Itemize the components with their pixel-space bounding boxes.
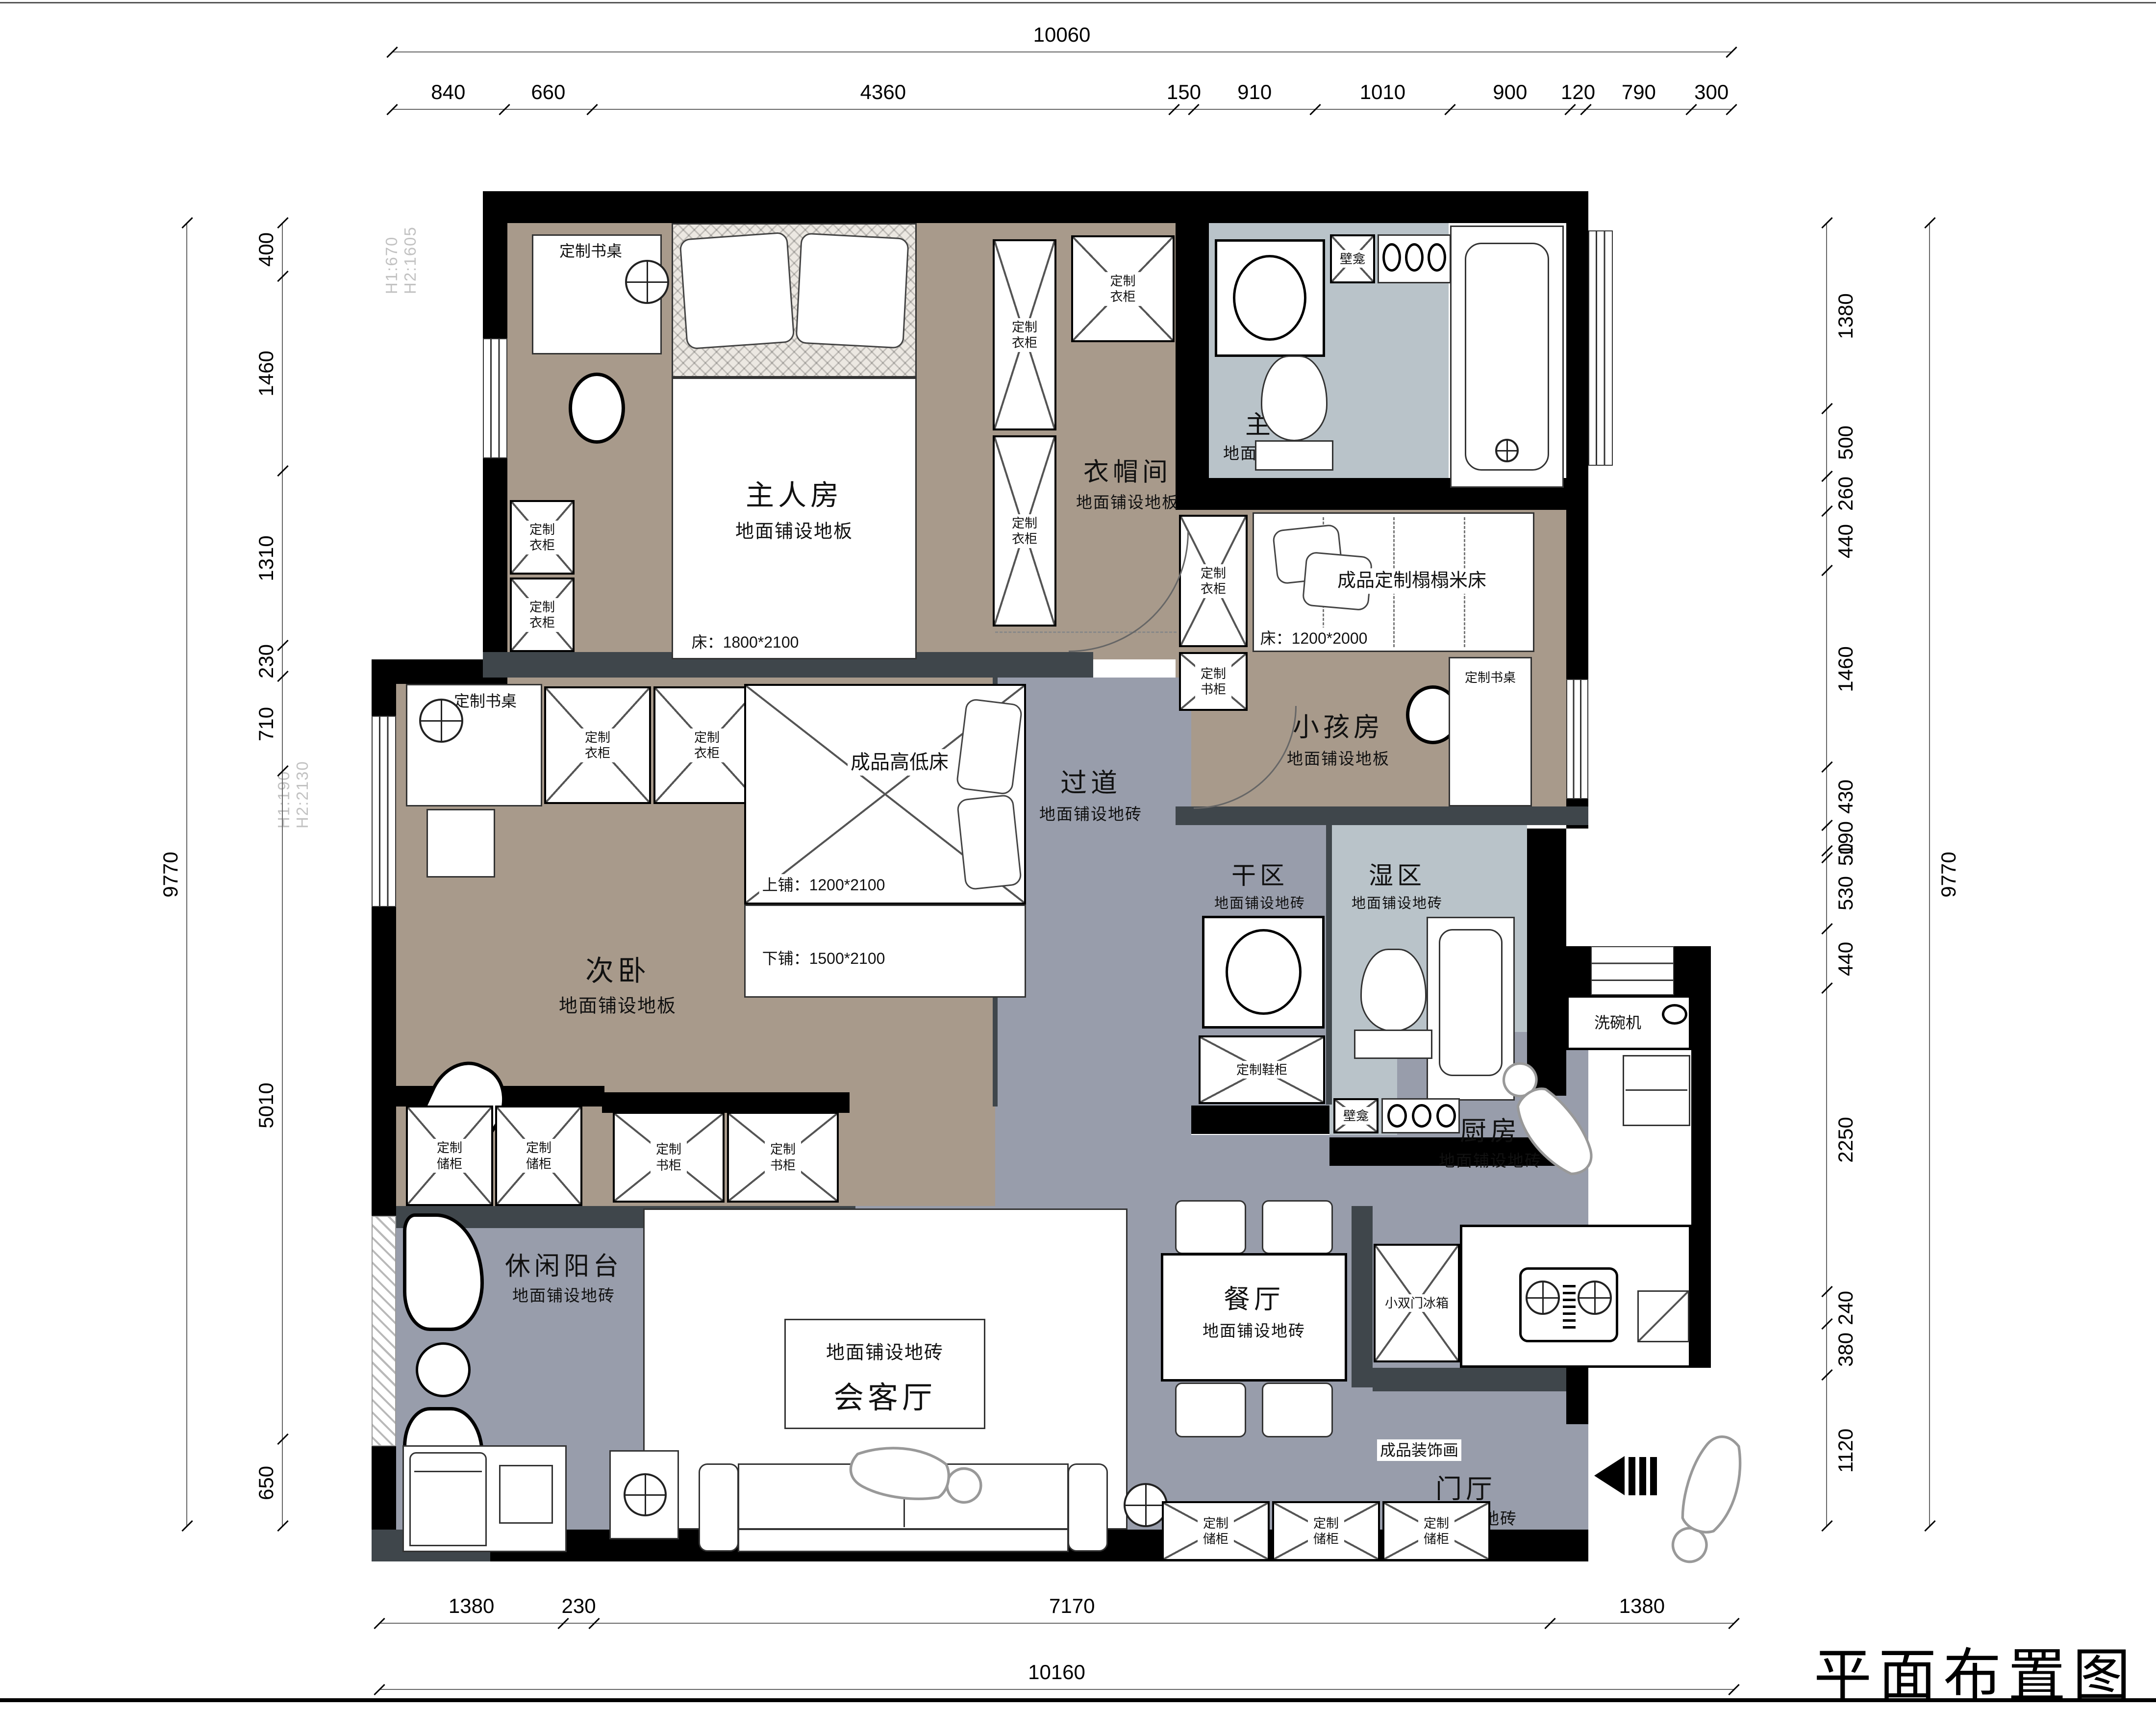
chair-second-desk <box>426 809 495 878</box>
corridor-floor-label: 地面铺设地砖 <box>1039 801 1142 825</box>
wall-kitchen-north-left <box>1566 946 1591 995</box>
desk-master-crosshair-icon <box>625 260 669 304</box>
dimension-tick <box>1686 104 1697 115</box>
bookcase-cabinet: 定制书柜 <box>727 1112 839 1203</box>
wardrobe-label: 定制衣柜 <box>579 729 616 762</box>
kids-room-floor-label: 地面铺设地板 <box>1287 746 1390 769</box>
shoe-cabinet: 定制鞋柜 <box>1199 1035 1325 1104</box>
wardrobe-label: 定制衣柜 <box>1006 318 1043 352</box>
entry-arrow-icon <box>1594 1456 1625 1495</box>
window-height-note: H1:190 H2:2130 <box>275 760 312 829</box>
wardrobe-cabinet: 定制衣柜 <box>510 578 575 652</box>
sofa-arm <box>699 1463 739 1552</box>
wardrobe-label: 定制衣柜 <box>524 598 560 632</box>
wall-right-kids <box>1566 490 1588 679</box>
dimension-tick <box>1821 1286 1832 1297</box>
wall-bath-west <box>1176 223 1209 510</box>
shoe-cabinet-label: 定制鞋柜 <box>1233 1061 1290 1079</box>
dimension-chain-right-overall: 9770 <box>1929 223 1930 1526</box>
tatami-bed-size: 床：1200*2000 <box>1257 628 1371 649</box>
dimension-tick <box>1821 505 1832 517</box>
dimension-tick <box>588 1618 600 1629</box>
wardrobe-label: 定制衣柜 <box>689 729 725 762</box>
dimension-label: 4360 <box>860 80 906 104</box>
dimension-label: 230 <box>254 644 278 679</box>
laundry-sink <box>499 1465 553 1524</box>
dimension-tick <box>277 671 288 682</box>
stove-grill <box>1563 1282 1576 1329</box>
wardrobe-cabinet: 定制衣柜 <box>1071 235 1175 342</box>
cloak-room-floor-label: 地面铺设地板 <box>1076 489 1179 513</box>
fridge-label: 小双门冰箱 <box>1382 1294 1452 1312</box>
window-kitchen-north <box>1591 946 1674 995</box>
dimension-tick <box>499 104 510 115</box>
dimension-label: 1380 <box>449 1594 494 1618</box>
wet-area-floor-label: 地面铺设地砖 <box>1352 892 1443 912</box>
stove-burner-icon <box>1578 1281 1612 1315</box>
niche-jar <box>1428 243 1446 272</box>
dimension-chain-right-segments: 1380500260440146043019050530440225024038… <box>1826 223 1827 1526</box>
dimension-chain-left-overall: 9770 <box>186 223 187 1526</box>
dimension-chain-bottom-overall: 10160 <box>379 1689 1734 1690</box>
pillow <box>956 794 1023 890</box>
second-room-name: 次卧 <box>585 948 650 989</box>
wet-area-name: 湿区 <box>1369 856 1426 891</box>
niche-jar <box>1382 243 1401 272</box>
basin-bowl <box>1226 929 1302 1015</box>
dimension-label: 120 <box>1561 80 1595 104</box>
dimension-tick <box>1821 1520 1832 1532</box>
corridor-name: 过道 <box>1060 761 1121 800</box>
dimension-tick <box>386 47 398 58</box>
bunk-lower-size: 下铺：1500*2100 <box>759 948 888 969</box>
wardrobe-cabinet: 定制衣柜 <box>993 239 1056 430</box>
wall-top <box>483 191 1588 223</box>
dimension-chain-top-segments: 84066043601509101010900120790300 <box>392 109 1731 110</box>
balcony-name: 休闲阳台 <box>505 1246 623 1282</box>
dimension-tick <box>277 217 288 228</box>
dishwasher-label: 洗碗机 <box>1591 1012 1644 1033</box>
window-height-note-line: H2:1605 <box>401 226 420 294</box>
dimension-tick <box>1821 565 1832 576</box>
storage-label: 定制储柜 <box>521 1139 557 1173</box>
niche-jar <box>1387 1104 1407 1128</box>
stove-burner-icon <box>1526 1281 1560 1315</box>
sofa-arm <box>1068 1463 1108 1552</box>
pillow <box>679 232 795 350</box>
dimension-tick <box>1168 104 1179 115</box>
dimension-tick <box>1188 104 1200 115</box>
bookcase-label: 定制书柜 <box>1195 665 1231 699</box>
master-room-name: 主人房 <box>746 472 843 513</box>
niche: 壁龛 <box>1333 1098 1379 1133</box>
dimension-chain-bottom-segments: 138023071701380 <box>379 1623 1734 1624</box>
entry-arrow-bar <box>1650 1457 1657 1495</box>
bookcase-cabinet: 定制书柜 <box>613 1112 725 1203</box>
desk-second-label: 定制书桌 <box>454 689 517 711</box>
dimension-label: 660 <box>531 80 565 104</box>
wardrobe-label: 定制衣柜 <box>524 521 560 554</box>
pillow <box>795 232 909 349</box>
wall-dining-kitchen <box>1352 1206 1373 1387</box>
dry-area-floor-label: 地面铺设地砖 <box>1214 892 1305 912</box>
dimension-tick <box>374 1618 385 1629</box>
dimension-label: 400 <box>254 232 278 267</box>
wall-kitchen-east <box>1691 995 1711 1368</box>
dimension-label: 790 <box>1622 80 1656 104</box>
dining-chair <box>1262 1383 1333 1437</box>
window-height-note-line: H1:670 <box>382 226 401 294</box>
dimension-label: 500 <box>1834 426 1857 460</box>
dimension-label: 840 <box>431 80 465 104</box>
dimension-label: 1010 <box>1360 80 1405 104</box>
master-room-floor-label: 地面铺设地板 <box>735 516 853 543</box>
floor-outlet-icon <box>624 1473 667 1516</box>
dining-floor-label: 地面铺设地砖 <box>1203 1318 1305 1341</box>
storage-label: 定制储柜 <box>1308 1514 1344 1548</box>
dimension-tick <box>1821 403 1832 414</box>
entry-name: 门厅 <box>1435 1467 1496 1506</box>
decor-painting-label: 成品装饰画 <box>1377 1439 1461 1461</box>
wall-cabinet-row-b <box>602 1092 850 1113</box>
dimension-label: 440 <box>1834 524 1857 558</box>
washing-machine <box>409 1452 487 1546</box>
storage-cabinet: 定制储柜 <box>1162 1501 1270 1561</box>
window-bath-bay <box>1588 230 1613 466</box>
wall-dry-south <box>1191 1106 1329 1134</box>
storage-label: 定制储柜 <box>1198 1514 1234 1548</box>
dimension-tick <box>1821 982 1832 994</box>
dimension-label: 530 <box>1834 876 1857 910</box>
desk-kids-label: 定制书桌 <box>1462 669 1519 687</box>
dimension-tick <box>1728 1618 1739 1629</box>
dimension-tick <box>1726 104 1737 115</box>
window-kids-right <box>1566 679 1588 799</box>
niche-label: 壁龛 <box>1340 1107 1372 1125</box>
dimension-tick <box>277 271 288 282</box>
dining-chair <box>1175 1383 1246 1437</box>
kids-room-name: 小孩房 <box>1293 705 1384 744</box>
window-second-left <box>372 716 396 907</box>
niche-jar <box>1436 1104 1456 1128</box>
dimension-label: 10060 <box>1033 23 1091 47</box>
dimension-label: 300 <box>1694 80 1729 104</box>
dimension-label: 1380 <box>1619 1594 1665 1618</box>
dimension-label: 1380 <box>1834 293 1857 339</box>
bunk-bed-label: 成品高低床 <box>848 749 952 776</box>
bathtub-master <box>1465 243 1549 471</box>
dimension-label: 5010 <box>254 1082 278 1128</box>
wall-kitchen-south <box>1373 1368 1588 1391</box>
desk-second-crosshair-icon <box>419 699 463 743</box>
dimension-label: 7170 <box>1049 1594 1095 1618</box>
toilet-wet-bowl <box>1360 949 1427 1032</box>
dimension-label: 240 <box>1834 1291 1857 1325</box>
dimension-label: 430 <box>1834 780 1857 814</box>
floor-plan-title: 平面布置图 <box>1677 1629 2137 1710</box>
dimension-tick <box>277 1520 288 1532</box>
bunk-upper-size: 上铺：1200*2100 <box>759 874 888 896</box>
dimension-tick <box>1821 1318 1832 1330</box>
storage-label: 定制储柜 <box>1418 1514 1454 1548</box>
dimension-label: 150 <box>1167 80 1201 104</box>
storage-cabinet: 定制储柜 <box>1272 1501 1380 1561</box>
dimension-label: 440 <box>1834 942 1857 976</box>
dimension-tick <box>1309 104 1321 115</box>
dimension-tick <box>386 104 398 115</box>
dining-name: 餐厅 <box>1224 1278 1284 1316</box>
wall-kitchen-north-right <box>1674 946 1711 995</box>
kitchen-sink <box>1662 1004 1687 1025</box>
dimension-tick <box>1924 217 1935 228</box>
cloak-room-name: 衣帽间 <box>1083 452 1172 488</box>
person-figure <box>1640 1418 1772 1582</box>
dimension-tick <box>1821 923 1832 934</box>
bookcase-cabinet: 定制书柜 <box>1179 652 1248 711</box>
toilet-master-bowl <box>1261 355 1328 441</box>
niche-jar <box>1412 1104 1431 1128</box>
dimension-tick <box>1821 845 1832 856</box>
dimension-label: 260 <box>1834 477 1857 511</box>
wardrobe-cabinet: 定制衣柜 <box>993 435 1056 627</box>
dimension-tick <box>277 465 288 477</box>
dimension-label: 1460 <box>254 351 278 397</box>
bathtub-faucet-icon <box>1495 439 1519 462</box>
kitchen-door <box>1637 1290 1689 1342</box>
basin-bowl <box>1233 255 1306 341</box>
dimension-label: 1460 <box>1834 646 1857 692</box>
dimension-tick <box>1924 1520 1935 1532</box>
dining-chair <box>1175 1200 1246 1254</box>
dimension-tick <box>374 1684 385 1695</box>
bookcase-label: 定制书柜 <box>651 1140 687 1174</box>
wall-kids-south <box>1176 806 1588 825</box>
toilet-master-tank <box>1255 440 1333 471</box>
dining-table <box>1161 1253 1347 1382</box>
window-master-left <box>483 338 507 458</box>
dimension-label: 1120 <box>1834 1429 1857 1473</box>
dining-chair <box>1262 1200 1333 1254</box>
dimension-tick <box>1444 104 1455 115</box>
living-floor-label: 地面铺设地砖 <box>826 1337 944 1364</box>
dimension-tick <box>558 1618 569 1629</box>
niche: 壁龛 <box>1330 234 1375 283</box>
window-balcony-left <box>372 1216 396 1446</box>
second-room-floor-label: 地面铺设地板 <box>559 991 677 1018</box>
toilet-wet-tank <box>1354 1030 1432 1059</box>
entry-arrow-bar <box>1629 1457 1635 1495</box>
entry-arrow-bar <box>1639 1457 1646 1495</box>
chair-master <box>569 373 625 444</box>
dimension-label: 910 <box>1237 80 1272 104</box>
dimension-tick <box>181 1520 193 1532</box>
dimension-label: 650 <box>254 1466 278 1500</box>
storage-cabinet: 定制储柜 <box>495 1106 582 1206</box>
dimension-chain-top-overall: 10060 <box>392 51 1731 52</box>
tatami-bed-label: 成品定制榻榻米床 <box>1334 568 1489 594</box>
wardrobe-label: 定制衣柜 <box>1195 564 1231 598</box>
page-border-top <box>0 2 2156 3</box>
niche-jar <box>1405 243 1424 272</box>
dimension-label: 380 <box>1834 1333 1857 1367</box>
wardrobe-label: 定制衣柜 <box>1006 514 1043 548</box>
dimension-label: 710 <box>254 707 278 741</box>
wall-dry-wet-divider <box>1326 825 1332 1105</box>
washer-panel <box>414 1471 482 1472</box>
dimension-tick <box>1564 104 1576 115</box>
dry-area-name: 干区 <box>1231 856 1288 891</box>
wardrobe-cabinet: 定制衣柜 <box>544 686 651 804</box>
dimension-label: 230 <box>562 1594 596 1618</box>
fridge: 小双门冰箱 <box>1374 1244 1460 1362</box>
wall-right-upper <box>1566 191 1588 490</box>
dimension-tick <box>1821 1369 1832 1381</box>
wall-entry-east-upper <box>1566 1368 1588 1424</box>
dimension-label: 1310 <box>254 536 278 581</box>
floor-outlet-icon <box>1124 1483 1168 1527</box>
dimension-tick <box>181 217 193 228</box>
kitchen-cabinet-divider <box>1626 1089 1687 1091</box>
balcony-floor-label: 地面铺设地砖 <box>512 1282 615 1306</box>
niche-label: 壁龛 <box>1337 250 1368 268</box>
dimension-label: 10160 <box>1028 1660 1085 1684</box>
bathtub-wet-inner <box>1439 929 1503 1076</box>
dimension-tick <box>1821 820 1832 831</box>
wardrobe-label: 定制衣柜 <box>1104 272 1141 306</box>
storage-label: 定制储柜 <box>431 1139 468 1173</box>
window-height-note: H1:670 H2:1605 <box>382 226 420 294</box>
wardrobe-cabinet: 定制衣柜 <box>510 500 575 575</box>
wardrobe-cabinet: 定制衣柜 <box>1179 515 1248 647</box>
dimension-tick <box>1821 217 1832 228</box>
dimension-label: 900 <box>1493 80 1527 104</box>
floor-plan-canvas: 定制书桌 主人房 地面铺设地板 床：1800*2100 定制衣柜 定制衣柜 定制… <box>0 0 2156 1710</box>
pillow <box>955 698 1023 796</box>
dimension-tick <box>277 640 288 651</box>
dimension-label: 9770 <box>159 852 182 897</box>
dimension-label: 50 <box>1834 843 1857 866</box>
dimension-tick <box>1821 761 1832 773</box>
dimension-label: 9770 <box>1937 852 1960 897</box>
desk-master-label: 定制书桌 <box>559 239 622 261</box>
window-height-note-line: H2:2130 <box>293 760 312 829</box>
dimension-label: 2250 <box>1834 1117 1857 1163</box>
dimension-tick <box>1821 471 1832 482</box>
dimension-tick <box>1544 1618 1555 1629</box>
storage-cabinet: 定制储柜 <box>406 1106 493 1206</box>
dimension-tick <box>586 104 598 115</box>
balcony-table <box>416 1342 471 1397</box>
dimension-tick <box>1726 47 1737 58</box>
dimension-tick <box>277 1433 288 1445</box>
bookcase-label: 定制书柜 <box>765 1140 801 1174</box>
storage-cabinet: 定制储柜 <box>1382 1501 1490 1561</box>
bed-master-size: 床：1800*2100 <box>689 631 802 653</box>
dimension-chain-left-segments: 400146013102307105010650 <box>282 223 283 1526</box>
dimension-tick <box>1580 104 1592 115</box>
